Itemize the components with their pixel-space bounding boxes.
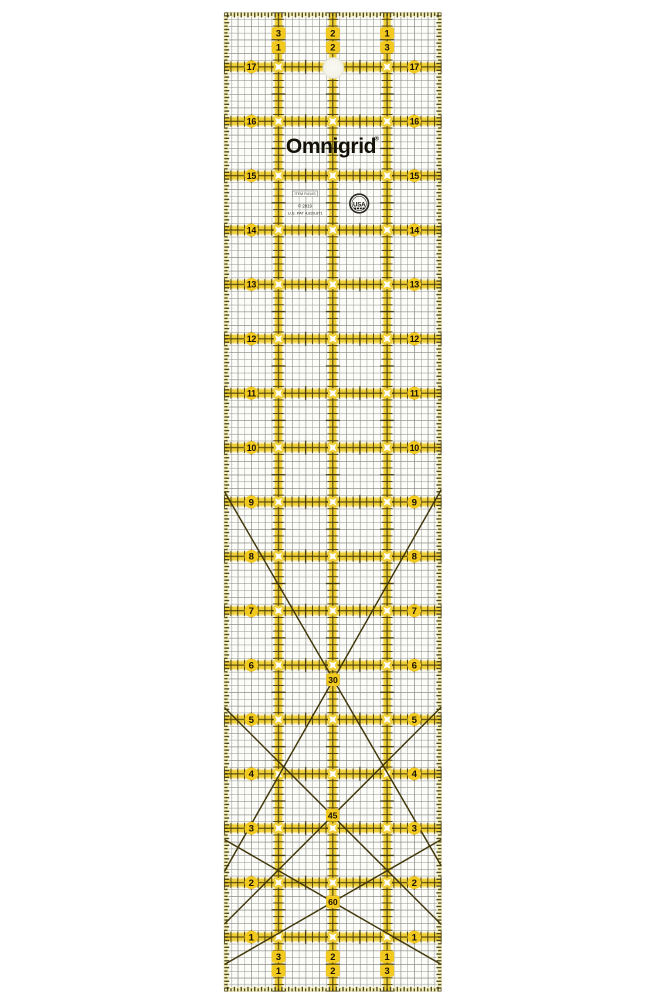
svg-text:1: 1 — [276, 966, 281, 976]
svg-text:2: 2 — [330, 952, 335, 962]
svg-text:2: 2 — [249, 878, 254, 889]
svg-text:5: 5 — [412, 715, 418, 726]
svg-text:USA: USA — [353, 201, 366, 208]
svg-text:®: ® — [375, 136, 380, 143]
svg-text:3: 3 — [276, 952, 281, 962]
svg-text:14: 14 — [410, 225, 420, 235]
svg-text:16: 16 — [410, 117, 420, 127]
svg-text:15: 15 — [410, 171, 420, 181]
svg-text:© 2019: © 2019 — [298, 204, 313, 209]
svg-text:ITEM R414S: ITEM R414S — [294, 192, 316, 196]
svg-text:1: 1 — [276, 43, 281, 53]
svg-text:8: 8 — [412, 552, 418, 563]
svg-text:60: 60 — [328, 897, 338, 907]
svg-text:11: 11 — [247, 388, 256, 398]
svg-text:2: 2 — [330, 29, 335, 39]
svg-text:3: 3 — [412, 824, 417, 835]
svg-text:14: 14 — [247, 225, 257, 235]
svg-text:16: 16 — [247, 117, 257, 127]
svg-text:10: 10 — [247, 443, 257, 453]
svg-text:3: 3 — [385, 43, 390, 53]
svg-text:10: 10 — [410, 443, 420, 453]
svg-text:13: 13 — [247, 280, 257, 290]
svg-text:· · ·: · · · — [356, 199, 362, 201]
svg-text:11: 11 — [410, 388, 419, 398]
svg-text:1: 1 — [412, 932, 418, 943]
svg-text:30: 30 — [328, 675, 338, 685]
svg-text:9: 9 — [249, 497, 254, 508]
svg-text:7: 7 — [249, 606, 254, 617]
svg-text:2: 2 — [412, 878, 417, 889]
svg-text:4: 4 — [249, 769, 255, 780]
svg-text:2: 2 — [330, 43, 335, 53]
svg-text:17: 17 — [410, 62, 420, 72]
svg-text:4: 4 — [412, 769, 418, 780]
svg-text:13: 13 — [410, 280, 420, 290]
svg-text:12: 12 — [410, 334, 420, 344]
svg-text:3: 3 — [385, 966, 390, 976]
svg-text:3: 3 — [249, 824, 254, 835]
svg-text:3: 3 — [276, 29, 281, 39]
svg-text:5: 5 — [249, 715, 255, 726]
svg-text:1: 1 — [385, 952, 390, 962]
svg-text:2: 2 — [330, 966, 335, 976]
svg-text:8: 8 — [249, 552, 255, 563]
svg-text:17: 17 — [247, 62, 257, 72]
svg-text:6: 6 — [412, 660, 417, 671]
svg-text:U.S. PAT 4,829,871: U.S. PAT 4,829,871 — [288, 210, 324, 215]
svg-text:7: 7 — [412, 606, 417, 617]
svg-text:1: 1 — [249, 932, 255, 943]
svg-text:12: 12 — [247, 334, 257, 344]
svg-text:Omnigrid: Omnigrid — [286, 135, 376, 158]
svg-text:9: 9 — [412, 497, 417, 508]
svg-text:45: 45 — [328, 810, 338, 820]
svg-text:6: 6 — [249, 660, 254, 671]
svg-text:15: 15 — [247, 171, 257, 181]
svg-text:1: 1 — [385, 29, 390, 39]
